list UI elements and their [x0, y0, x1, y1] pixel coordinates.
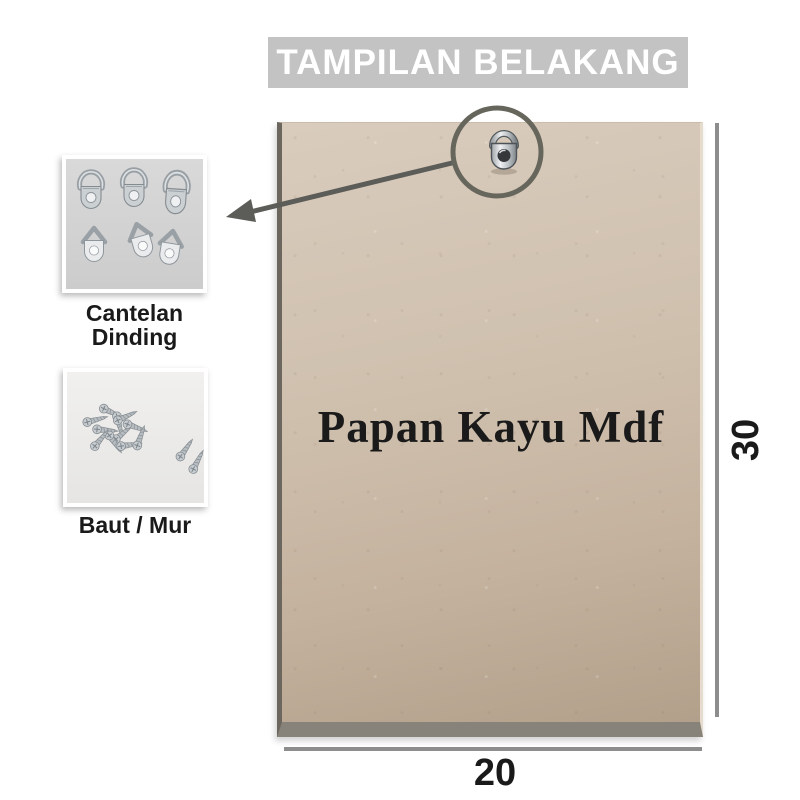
d-ring-hanger-icon — [66, 159, 203, 289]
height-value: 30 — [725, 419, 768, 461]
d-ring-hook-icon — [485, 126, 523, 176]
mdf-board: Papan Kayu Mdf — [277, 122, 703, 737]
hangers-caption-line2: Dinding — [62, 325, 207, 349]
hangers-photo-background — [66, 159, 203, 289]
hangers-caption-line1: Cantelan — [62, 301, 207, 325]
width-dimension-label: 20 — [430, 752, 560, 795]
product-infographic: TAMPILAN BELAKANG Papan Kayu Mdf Can — [0, 0, 800, 800]
callout-arrow-head — [226, 199, 256, 222]
banner-title: TAMPILAN BELAKANG — [276, 43, 679, 83]
screws-photo — [63, 368, 208, 507]
hangers-caption: Cantelan Dinding — [62, 301, 207, 349]
screws-pile-icon — [67, 372, 204, 503]
banner: TAMPILAN BELAKANG — [268, 37, 688, 88]
hangers-photo — [62, 155, 207, 293]
height-dimension-label: 30 — [716, 400, 776, 480]
board-label: Papan Kayu Mdf — [282, 401, 700, 453]
width-dimension-line — [284, 747, 702, 751]
screws-photo-background — [67, 372, 204, 503]
screws-caption: Baut / Mur — [55, 513, 215, 537]
